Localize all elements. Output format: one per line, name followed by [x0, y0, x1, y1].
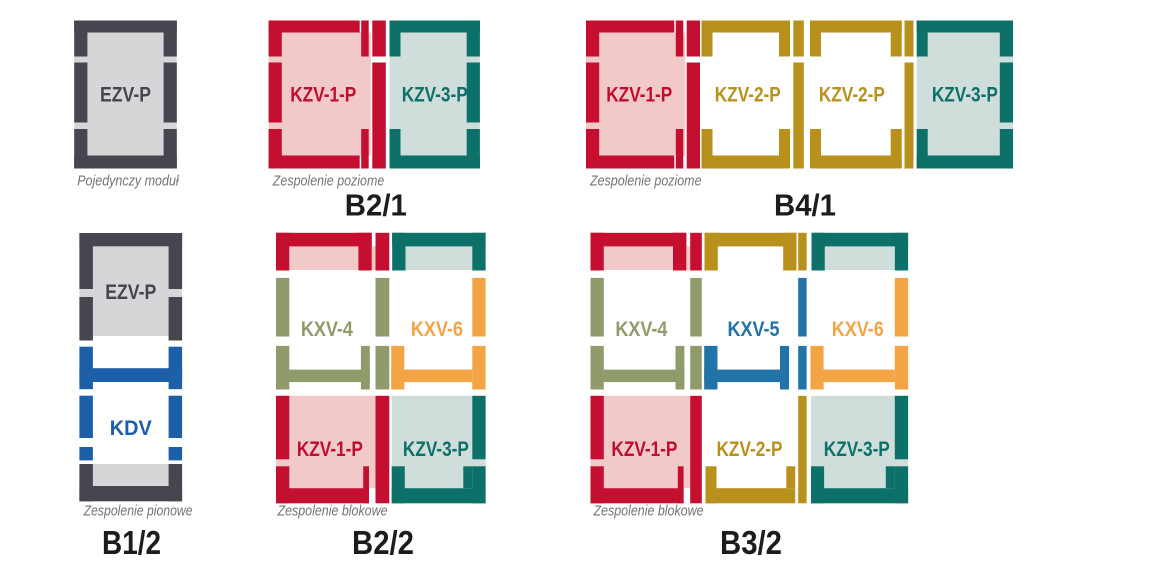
svg-text:KZV-2-P: KZV-2-P	[715, 82, 781, 106]
svg-text:KZV-3-P: KZV-3-P	[402, 82, 468, 106]
svg-text:KZV-3-P: KZV-3-P	[932, 82, 998, 106]
svg-text:EZV-P: EZV-P	[105, 280, 156, 304]
svg-text:KXV-5: KXV-5	[728, 317, 780, 341]
svg-text:KXV-6: KXV-6	[832, 317, 884, 341]
svg-text:KXV-6: KXV-6	[411, 317, 463, 341]
svg-text:KZV-3-P: KZV-3-P	[824, 437, 890, 461]
svg-text:Zespolenie pionowe: Zespolenie pionowe	[83, 504, 193, 520]
svg-text:B1/2: B1/2	[102, 525, 161, 562]
svg-text:KXV-4: KXV-4	[301, 317, 353, 341]
svg-text:KXV-4: KXV-4	[615, 317, 667, 341]
svg-text:B4/1: B4/1	[774, 187, 836, 222]
svg-text:Zespolenie poziome: Zespolenie poziome	[589, 173, 701, 189]
svg-text:KZV-1-P: KZV-1-P	[290, 82, 356, 106]
svg-text:KZV-2-P: KZV-2-P	[819, 82, 885, 106]
svg-text:B2/2: B2/2	[352, 525, 414, 562]
svg-text:KZV-1-P: KZV-1-P	[611, 437, 677, 461]
svg-text:KZV-1-P: KZV-1-P	[297, 437, 363, 461]
svg-text:B3/2: B3/2	[720, 525, 782, 562]
svg-text:KZV-3-P: KZV-3-P	[403, 437, 469, 461]
svg-text:KZV-2-P: KZV-2-P	[717, 437, 783, 461]
svg-text:KDV: KDV	[110, 416, 153, 440]
svg-text:Pojedynczy moduł: Pojedynczy moduł	[77, 173, 179, 189]
svg-text:Zespolenie blokowe: Zespolenie blokowe	[277, 504, 388, 520]
svg-text:B2/1: B2/1	[345, 187, 407, 222]
svg-text:EZV-P: EZV-P	[100, 82, 151, 106]
svg-text:KZV-1-P: KZV-1-P	[606, 82, 672, 106]
svg-text:Zespolenie blokowe: Zespolenie blokowe	[593, 504, 704, 520]
